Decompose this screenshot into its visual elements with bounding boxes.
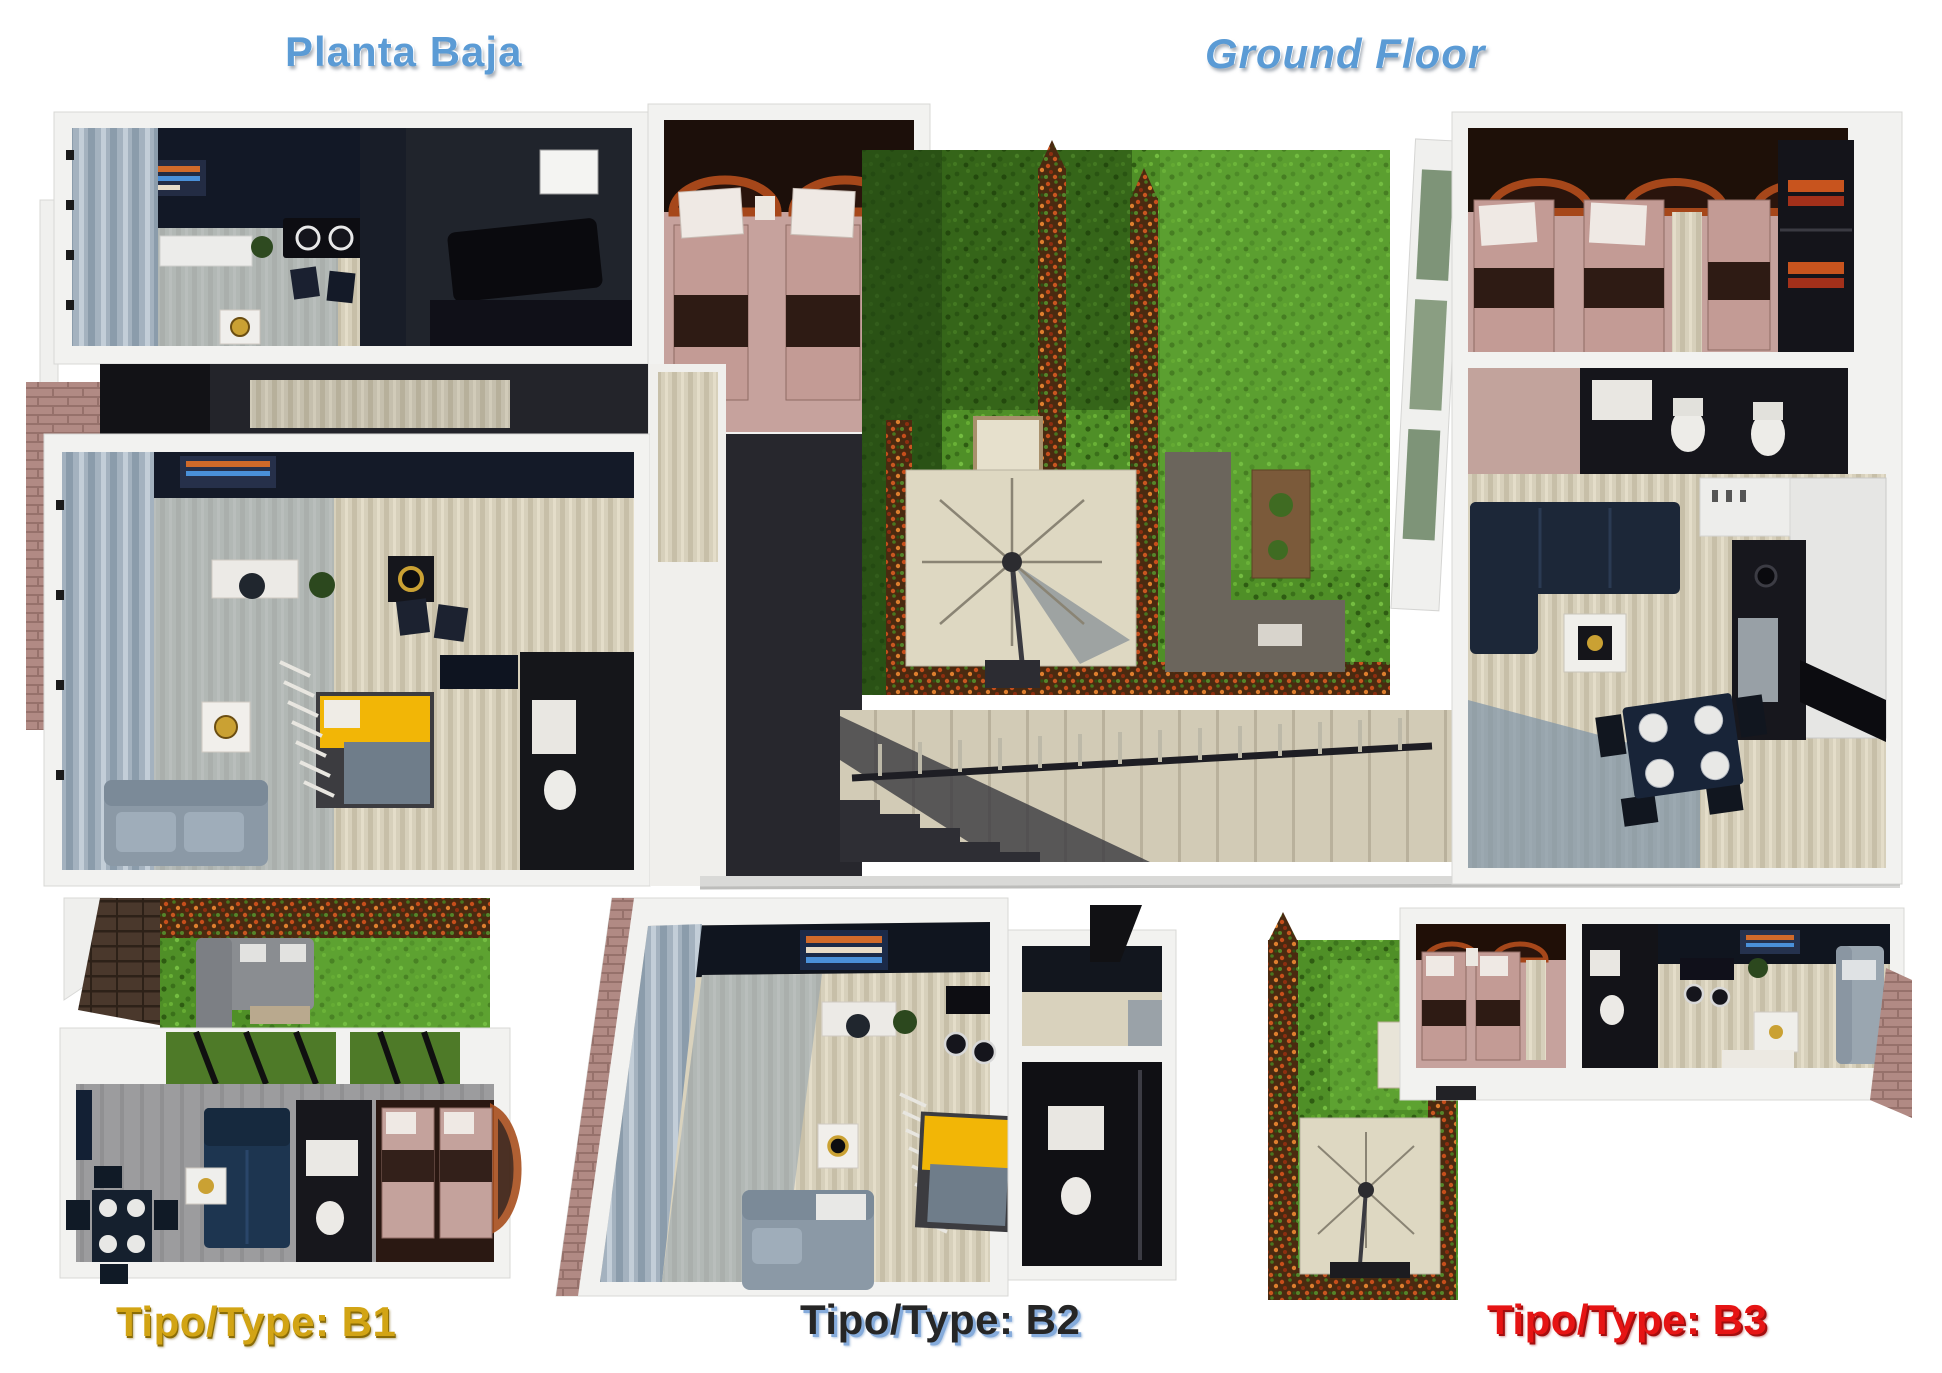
bathroom [520, 652, 634, 870]
planter-table [1252, 470, 1310, 578]
plan-b3 [1268, 908, 1912, 1300]
bed-yellow [915, 1111, 1021, 1232]
bed [1584, 200, 1664, 356]
bathroom [1468, 352, 1886, 474]
bed [1474, 200, 1554, 356]
b3-bathroom [1582, 924, 1658, 1068]
living-kitchen-right [1468, 474, 1886, 868]
b1-window-wall [166, 1032, 460, 1084]
label-type-b3: Tipo/Type: B3 [1487, 1296, 1767, 1344]
plant-icon [309, 572, 335, 598]
garden-center [862, 140, 1390, 695]
b2-main-room [600, 922, 1021, 1290]
unit-b-studio [44, 434, 650, 886]
plan-b2 [556, 898, 1176, 1296]
floor-plan-sheet: Planta Baja Ground Floor Tipo/Type: B1 T… [0, 0, 1942, 1373]
b2-kitchen-bath-wing [1008, 905, 1176, 1280]
patio-umbrella [1300, 1118, 1440, 1278]
b3-bedroom [1416, 924, 1566, 1068]
plant-icon [893, 1010, 917, 1034]
main-ground-floor-plan [26, 104, 1902, 888]
unit-a-living-kitchen [54, 112, 648, 364]
bed-yellow [316, 692, 434, 808]
title-planta-baja: Planta Baja [285, 28, 522, 76]
wardrobe [1778, 140, 1854, 358]
label-type-b1: Tipo/Type: B1 [116, 1298, 396, 1346]
sofa-gray [742, 1190, 874, 1290]
plan-b1 [60, 898, 518, 1284]
corridor-entry [100, 364, 648, 434]
bed [786, 188, 860, 400]
label-type-b2: Tipo/Type: B2 [800, 1296, 1080, 1344]
plant-icon [251, 236, 273, 258]
unit-right [1391, 112, 1902, 884]
b1-garden [64, 898, 490, 1038]
b1-living [66, 1084, 518, 1284]
plant-icon [1748, 958, 1768, 978]
sofa-gray [104, 780, 268, 866]
title-ground-floor: Ground Floor [1205, 30, 1485, 78]
bathroom [296, 1100, 372, 1262]
b3-living-kitchen [1658, 924, 1890, 1068]
floor-plan-rendering [0, 0, 1942, 1373]
